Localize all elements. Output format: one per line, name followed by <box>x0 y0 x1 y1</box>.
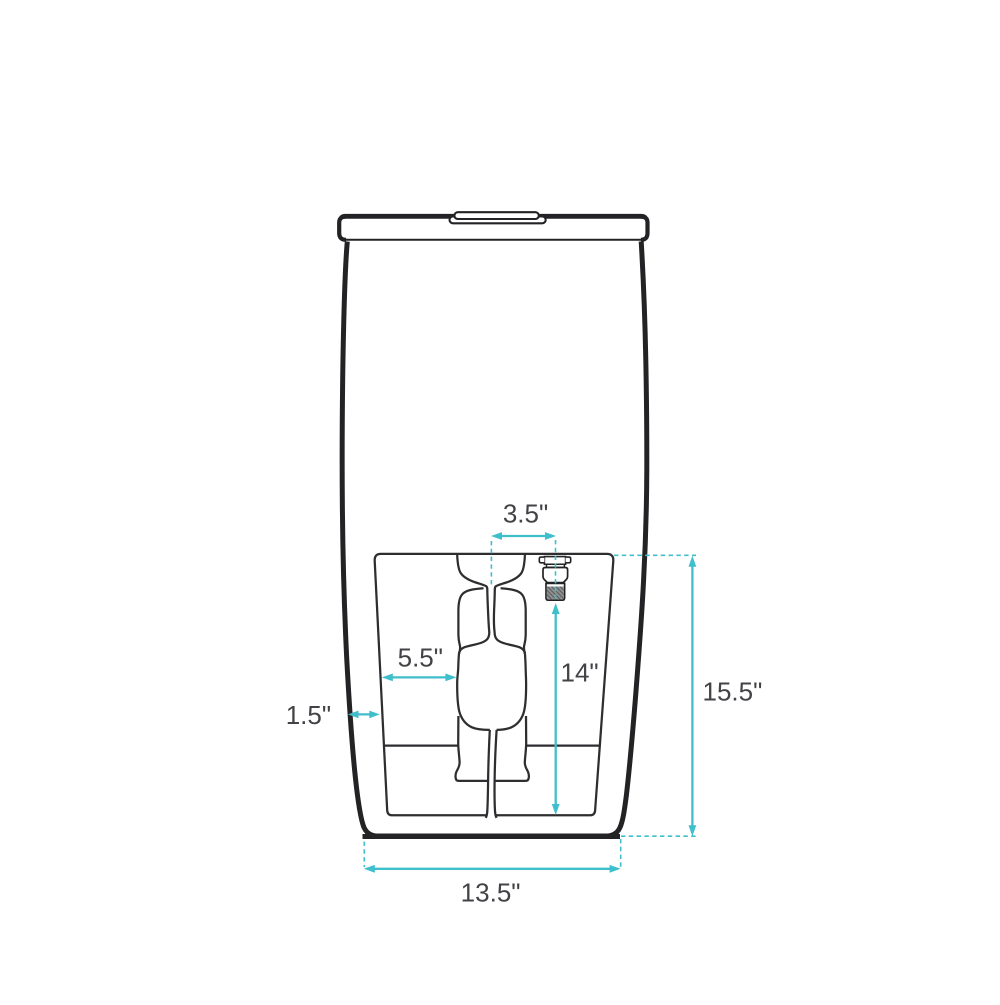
svg-text:13.5": 13.5" <box>461 877 521 907</box>
svg-text:15.5": 15.5" <box>703 677 763 707</box>
svg-text:5.5": 5.5" <box>398 643 443 673</box>
svg-text:14": 14" <box>561 657 599 687</box>
svg-text:3.5": 3.5" <box>503 499 548 529</box>
svg-text:1.5": 1.5" <box>286 700 331 730</box>
